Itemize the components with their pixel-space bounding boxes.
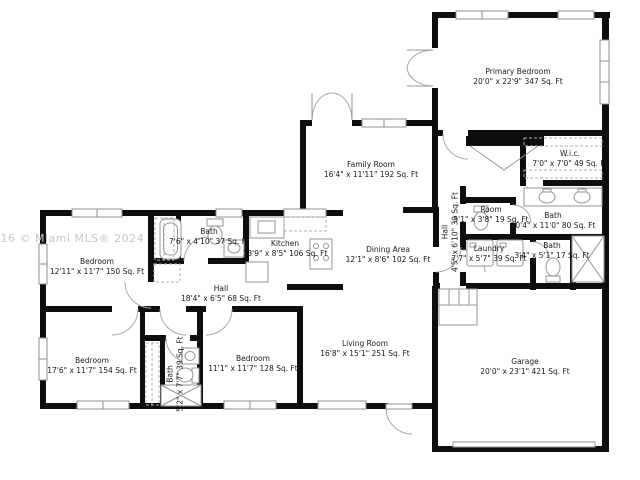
room-name: Primary Bedroom — [473, 67, 563, 77]
room-name: Hall — [181, 284, 261, 294]
door-arc-icon — [112, 309, 138, 335]
room-name: Garage — [480, 357, 570, 367]
room-name: Living Room — [320, 339, 410, 349]
room-label-family-room: Family Room 16'4" x 11'11" 192 Sq. Ft — [324, 160, 418, 180]
room-name: Hall — [440, 192, 450, 272]
closet-icon — [146, 343, 159, 405]
window-icon — [72, 209, 122, 217]
window-icon — [224, 401, 276, 409]
room-label-wic: W.i.c. 7'0" x 7'0" 49 Sq. Ft — [532, 149, 607, 169]
room-name: Bath — [165, 336, 175, 411]
room-dims: 5'2" x 7'7" 39 Sq. Ft — [175, 336, 185, 411]
room-label-bath-80: Bath 10'4" x 11'0" 80 Sq. Ft — [511, 211, 596, 231]
room-label-kitchen: Kitchen 13'9" x 8'5" 106 Sq. Ft — [243, 239, 328, 259]
room-label-bath-37: Bath 7'6" x 4'10" 37 Sq. Ft — [169, 227, 249, 247]
room-name: W.i.c. — [532, 149, 607, 159]
window-icon — [362, 119, 406, 127]
window-icon — [456, 11, 508, 19]
window-icon — [284, 209, 326, 217]
window-icon — [216, 209, 242, 217]
room-dims: 12'11" x 11'7" 150 Sq. Ft — [50, 267, 144, 277]
room-dims: 11'1" x 11'7" 128 Sq. Ft — [208, 364, 298, 374]
room-label-hall-68: Hall 18'4" x 6'5" 68 Sq. Ft — [181, 284, 261, 304]
closet-icon — [154, 264, 180, 282]
room-name: Kitchen — [243, 239, 328, 249]
room-name: Bedroom — [47, 356, 137, 366]
closet-doors-icon — [470, 146, 538, 170]
door-arc-icon — [206, 309, 232, 335]
counter-icon — [284, 217, 326, 231]
room-name: Bedroom — [50, 257, 144, 267]
double-vanity-icon — [524, 188, 602, 206]
room-label-bath-17: Bath 3'4" x 5'1" 17 Sq. Ft — [514, 241, 589, 261]
room-label-primary-bedroom: Primary Bedroom 20'0" x 22'9" 347 Sq. Ft — [473, 67, 563, 87]
room-label-bedroom-150: Bedroom 12'11" x 11'7" 150 Sq. Ft — [50, 257, 144, 277]
room-label-living-room: Living Room 16'8" x 15'1" 251 Sq. Ft — [320, 339, 410, 359]
room-name: Dining Area — [346, 245, 431, 255]
room-name: Bath — [511, 211, 596, 221]
room-dims: 18'4" x 6'5" 68 Sq. Ft — [181, 294, 261, 304]
window-icon — [558, 11, 594, 19]
stairs-icon — [439, 289, 477, 325]
door-arc-icon — [160, 309, 186, 335]
room-dims: 12'1" x 8'6" 102 Sq. Ft — [346, 255, 431, 265]
room-dims: 20'0" x 22'9" 347 Sq. Ft — [473, 77, 563, 87]
door-arc-icon — [125, 282, 151, 308]
garage-door-icon — [453, 442, 595, 447]
window-icon — [39, 338, 47, 380]
room-label-bath-39: Bath 5'2" x 7'7" 39 Sq. Ft — [165, 336, 185, 411]
window-icon — [77, 401, 129, 409]
room-dims: 17'6" x 11'7" 154 Sq. Ft — [47, 366, 137, 376]
room-dims: 7'6" x 4'10" 37 Sq. Ft — [169, 237, 249, 247]
window-icon — [318, 401, 366, 409]
floor-plan-image: Primary Bedroom 20'0" x 22'9" 347 Sq. Ft… — [0, 0, 640, 480]
room-label-bedroom-154: Bedroom 17'6" x 11'7" 154 Sq. Ft — [47, 356, 137, 376]
room-dims: 20'0" x 23'1" 421 Sq. Ft — [480, 367, 570, 377]
kitchen-sink-icon — [250, 217, 284, 238]
room-dims: 7'0" x 7'0" 49 Sq. Ft — [532, 159, 607, 169]
watermark: 016 © Miami MLS® 2024 — [0, 232, 144, 245]
room-name: Bedroom — [208, 354, 298, 364]
room-name: Family Room — [324, 160, 418, 170]
room-dims: 3'4" x 5'1" 17 Sq. Ft — [514, 251, 589, 261]
french-doors-icon — [312, 93, 352, 120]
room-name: Bath — [514, 241, 589, 251]
door-arc-icon — [443, 134, 468, 159]
window-icon — [39, 244, 47, 284]
refrigerator-icon — [246, 262, 268, 282]
french-doors-icon — [407, 50, 433, 86]
room-dims: 16'4" x 11'11" 192 Sq. Ft — [324, 170, 418, 180]
front-door-icon — [386, 404, 412, 434]
room-dims: 13'9" x 8'5" 106 Sq. Ft — [243, 249, 328, 259]
toilet-icon — [546, 258, 560, 282]
window-icon — [600, 40, 609, 104]
room-label-dining-area: Dining Area 12'1" x 8'6" 102 Sq. Ft — [346, 245, 431, 265]
room-name: Bath — [169, 227, 249, 237]
room-dims: 10'4" x 11'0" 80 Sq. Ft — [511, 221, 596, 231]
room-dims: 16'8" x 15'1" 251 Sq. Ft — [320, 349, 410, 359]
room-label-bedroom-128: Bedroom 11'1" x 11'7" 128 Sq. Ft — [208, 354, 298, 374]
room-label-garage: Garage 20'0" x 23'1" 421 Sq. Ft — [480, 357, 570, 377]
